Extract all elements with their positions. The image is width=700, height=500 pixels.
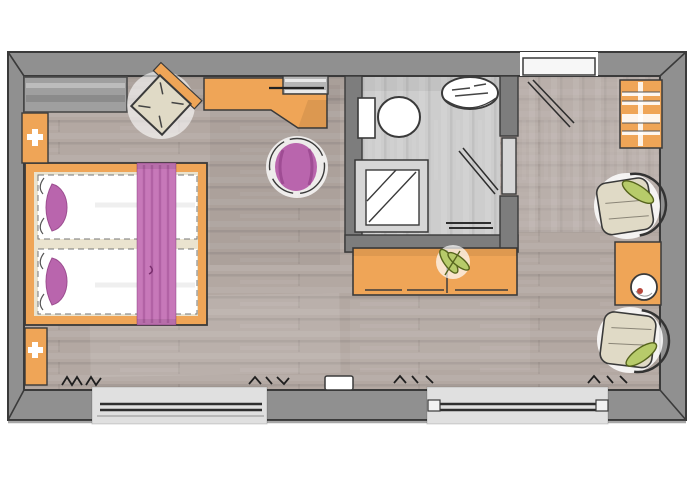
cup — [631, 274, 657, 300]
window-right-post-left — [428, 400, 440, 411]
bathroom-door-leaf — [502, 138, 516, 194]
nightstand-bottom — [25, 328, 47, 385]
toilet-bowl — [378, 97, 420, 137]
shower — [355, 160, 428, 232]
entrance-door-leaf — [523, 58, 595, 75]
wardrobe-body — [24, 77, 127, 112]
top-wall-left — [8, 52, 520, 76]
bathroom-wall-right-bottom — [500, 196, 518, 252]
window-right-post-right — [596, 400, 608, 411]
runner-edge-bottom — [137, 319, 176, 325]
bathroom-wall-right-top — [500, 76, 518, 136]
desk-stool — [266, 136, 328, 198]
sink — [442, 77, 498, 109]
wardrobe — [24, 77, 127, 112]
nightstand-bottom-lamp-v — [32, 342, 38, 358]
toilet-tank — [358, 98, 375, 138]
luggage-rack — [620, 80, 662, 148]
wardrobe-shade — [26, 95, 125, 102]
sideboard-group — [353, 245, 517, 295]
window-right-sill — [427, 387, 608, 424]
floor-box — [325, 376, 353, 390]
tv-stripe-2 — [285, 90, 326, 93]
toilet — [358, 97, 420, 138]
runner-edge-top — [137, 163, 176, 169]
sink-basin — [442, 77, 498, 109]
window-left — [92, 387, 267, 424]
tv-stripe-1 — [285, 79, 326, 82]
floor-plan-drawing — [0, 0, 700, 500]
nightstand-top — [22, 113, 48, 163]
wardrobe-highlight — [26, 83, 125, 88]
window-left-sill — [92, 387, 267, 424]
left-wall — [8, 52, 24, 420]
floor-plan — [0, 0, 700, 500]
floor-light-patch-2 — [350, 300, 530, 370]
cup-accent-dot — [637, 288, 643, 294]
sideboard-top-shade — [353, 248, 517, 256]
right-wall — [660, 52, 686, 420]
nightstand-top-lamp-v — [32, 129, 38, 146]
window-right — [427, 387, 608, 424]
bed-group — [25, 163, 207, 325]
